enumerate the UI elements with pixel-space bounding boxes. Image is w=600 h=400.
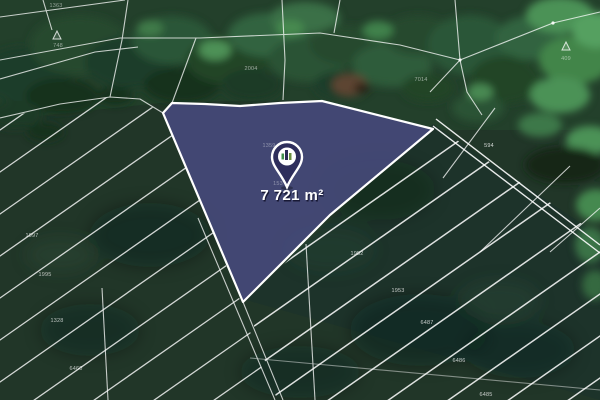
parcel-number-label: 409: [561, 56, 571, 62]
parcel-number-label: 6487: [420, 320, 433, 326]
parcel-number-label: 1953: [391, 288, 404, 294]
parcel-number-label: 7014: [414, 77, 427, 83]
parcel-number-label: 6485: [479, 392, 492, 398]
parcel-number-label: 6486: [452, 358, 465, 364]
map-canvas[interactable]: 1363 748 2004 7014 409 1997 1995 1328 64…: [0, 0, 600, 400]
parcel-number-label: 2004: [244, 66, 257, 72]
parcel-number-label: 1997: [25, 233, 38, 239]
area-label-text: 7 721 m²: [260, 187, 323, 204]
parcel-number-label: 6460: [69, 366, 82, 372]
area-label: 7 721 m² 7 721 m²: [260, 187, 324, 206]
parcel-number-label: 748: [53, 43, 63, 49]
parcel-number-label: 1328: [50, 318, 63, 324]
parcel-number-label: 1995: [38, 272, 51, 278]
parcel-number-label: 1952: [350, 251, 363, 257]
road-number-label: 594: [484, 143, 494, 149]
parcel-number-label: 1363: [49, 3, 62, 9]
